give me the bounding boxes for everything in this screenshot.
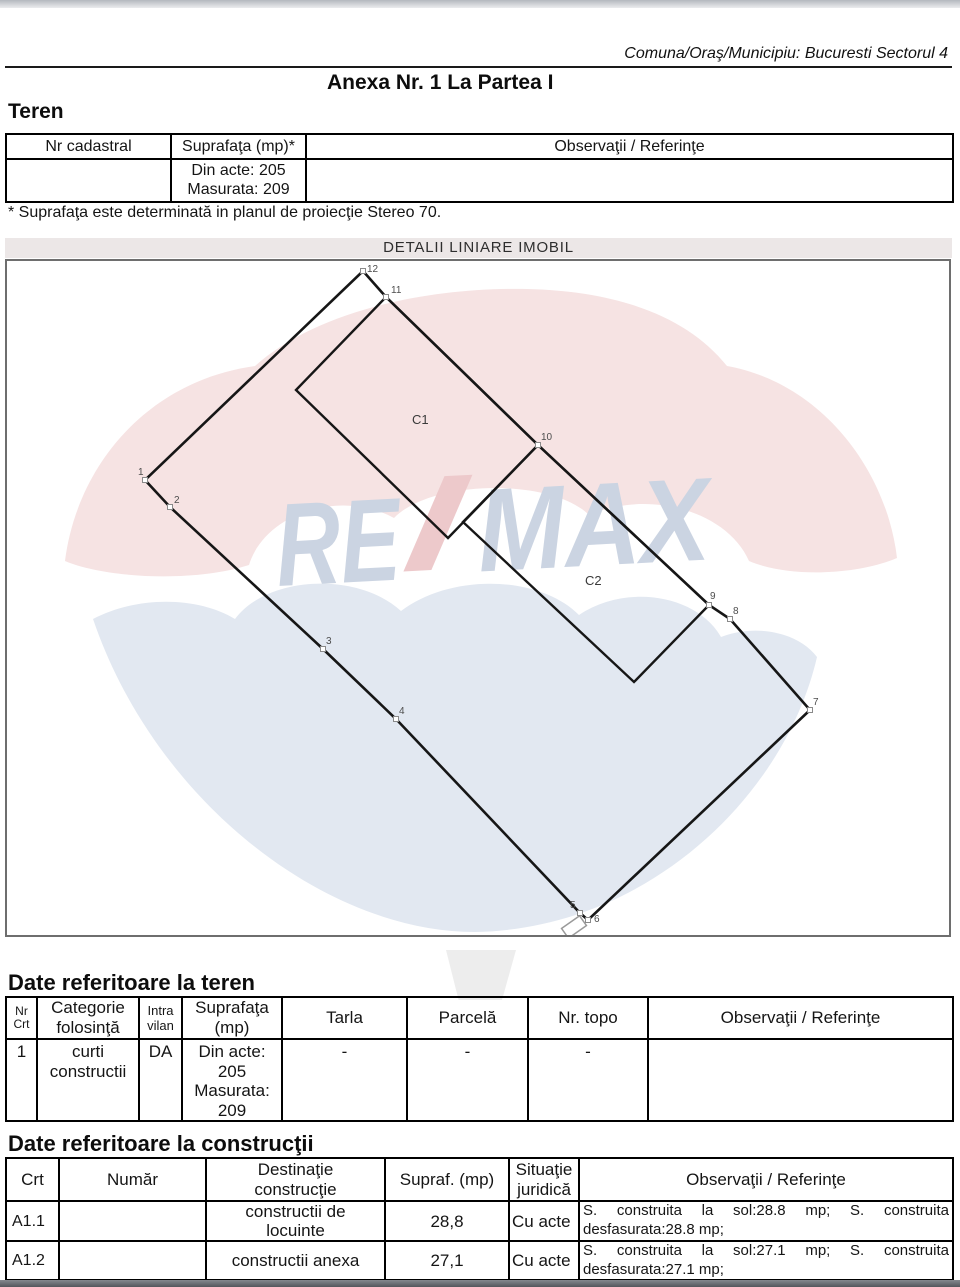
- vertex-marker: [536, 443, 541, 448]
- cell-parcela: -: [407, 1039, 528, 1121]
- balloon-basket: [446, 950, 516, 1000]
- constructii-header-row: Crt Număr Destinaţie construcţie Supraf.…: [6, 1158, 953, 1201]
- cell-suprafata: Din acte: 205 Masurata: 209: [171, 159, 306, 202]
- section-heading-date-teren: Date referitoare la teren: [8, 970, 255, 996]
- column-header-categorie: Categorie folosinţă: [37, 997, 139, 1039]
- vertex-label: 3: [326, 636, 332, 647]
- vertex-marker: [321, 647, 326, 652]
- detalii-banner: DETALII LINIARE IMOBIL: [5, 238, 952, 258]
- building-label-c1: C1: [412, 412, 429, 427]
- table-row: 1 curti constructii DA Din acte: 205 Mas…: [6, 1039, 953, 1121]
- vertex-label: 1: [138, 467, 144, 478]
- cell-situatie: Cu acte: [509, 1201, 579, 1241]
- cadastral-table: Nr cadastral Suprafaţa (mp)* Observaţii …: [5, 133, 954, 203]
- vertex-marker: [361, 269, 366, 274]
- vertex-marker: [168, 505, 173, 510]
- site-plan: RE MAX 1 2 3: [5, 259, 951, 937]
- section-heading-teren: Teren: [8, 100, 64, 124]
- teren-table: Nr Crt Categorie folosinţă Intra vilan S…: [5, 996, 954, 1122]
- cell-numar: [59, 1201, 206, 1241]
- column-header-destinatie: Destinaţie construcţie: [206, 1158, 385, 1201]
- cell-categorie: curti constructii: [37, 1039, 139, 1121]
- cell-suprafata: 28,8: [385, 1201, 509, 1241]
- column-header-suprafata: Suprafaţa (mp)*: [171, 134, 306, 159]
- remax-wordmark: RE MAX: [272, 453, 718, 612]
- building-label-c2: C2: [585, 573, 602, 588]
- column-header-observatii: Observaţii / Referinţe: [648, 997, 953, 1039]
- vertex-label: 6: [594, 914, 600, 925]
- column-header-nr-crt: Nr Crt: [6, 997, 37, 1039]
- suprafata-din-acte: Din acte: 205: [172, 161, 305, 180]
- column-header-numar: Număr: [59, 1158, 206, 1201]
- cell-suprafata: 27,1: [385, 1241, 509, 1280]
- column-header-nr-topo: Nr. topo: [528, 997, 648, 1039]
- cell-crt: A1.2: [6, 1241, 59, 1280]
- vertex-marker: [384, 295, 389, 300]
- cell-observatii: [306, 159, 953, 202]
- cell-nr-topo: -: [528, 1039, 648, 1121]
- column-header-crt: Crt: [6, 1158, 59, 1201]
- constructii-table: Crt Număr Destinaţie construcţie Supraf.…: [5, 1157, 954, 1281]
- vertex-label: 2: [174, 495, 180, 506]
- teren-header-row: Nr Crt Categorie folosinţă Intra vilan S…: [6, 997, 953, 1039]
- vertex-label: 4: [399, 706, 405, 717]
- column-header-tarla: Tarla: [282, 997, 407, 1039]
- vertex-marker: [394, 717, 399, 722]
- column-header-intravilan: Intra vilan: [139, 997, 182, 1039]
- vertex-marker: [143, 478, 148, 483]
- header-location-text: Comuna/Oraş/Municipiu: Bucuresti Sectoru…: [624, 45, 948, 63]
- cell-numar: [59, 1241, 206, 1280]
- vertex-marker: [586, 918, 591, 923]
- column-header-suprafata: Suprafaţa (mp): [182, 997, 282, 1039]
- vertex-marker: [808, 708, 813, 713]
- vertex-label: 5: [570, 900, 576, 911]
- cell-destinatie: constructii anexa: [206, 1241, 385, 1280]
- suprafata-masurata: Masurata: 209: [172, 180, 305, 199]
- page-title: Anexa Nr. 1 La Partea I: [327, 71, 553, 95]
- cell-nr-cadastral: [6, 159, 171, 202]
- column-header-supraf: Supraf. (mp): [385, 1158, 509, 1201]
- vertex-label: 7: [813, 697, 819, 708]
- column-header-observatii: Observaţii / Referinţe: [579, 1158, 953, 1201]
- column-header-parcela: Parcelă: [407, 997, 528, 1039]
- cell-observatii: S. construita la sol:28.8 mp; S. constru…: [579, 1201, 953, 1241]
- vertex-marker: [578, 911, 583, 916]
- table-row: Din acte: 205 Masurata: 209: [6, 159, 953, 202]
- header-divider: [5, 66, 952, 68]
- section-heading-date-constructii: Date referitoare la construcţii: [8, 1131, 314, 1157]
- cell-destinatie: constructii de locuinte: [206, 1201, 385, 1241]
- vertex-label: 9: [710, 591, 716, 602]
- cell-situatie: Cu acte: [509, 1241, 579, 1280]
- cell-crt: A1.1: [6, 1201, 59, 1241]
- cadastral-header-row: Nr cadastral Suprafaţa (mp)* Observaţii …: [6, 134, 953, 159]
- cell-nr-crt: 1: [6, 1039, 37, 1121]
- annex-structure: [562, 916, 587, 935]
- column-header-situatie: Situaţie juridică: [509, 1158, 579, 1201]
- remax-re: RE: [272, 474, 405, 612]
- table-row: A1.1 constructii de locuinte 28,8 Cu act…: [6, 1201, 953, 1241]
- vertex-label: 11: [391, 285, 402, 296]
- vertex-marker: [707, 603, 712, 608]
- column-header-observatii: Observaţii / Referinţe: [306, 134, 953, 159]
- window-top-edge: [0, 0, 960, 8]
- remax-watermark: RE MAX: [65, 289, 897, 932]
- cell-observatii: S. construita la sol:27.1 mp; S. constru…: [579, 1241, 953, 1280]
- table-row: A1.2 constructii anexa 27,1 Cu acte S. c…: [6, 1241, 953, 1280]
- window-bottom-edge: [0, 1280, 960, 1287]
- balloon-bottom: [93, 584, 817, 932]
- footnote: * Suprafaţa este determinată in planul d…: [8, 204, 441, 222]
- vertex-marker: [728, 617, 733, 622]
- vertex-label: 10: [541, 432, 553, 443]
- vertex-label: 8: [733, 606, 739, 617]
- site-plan-svg: RE MAX 1 2 3: [7, 261, 949, 935]
- cell-tarla: -: [282, 1039, 407, 1121]
- cell-suprafata: Din acte: 205 Masurata: 209: [182, 1039, 282, 1121]
- cell-intravilan: DA: [139, 1039, 182, 1121]
- vertex-label: 12: [367, 264, 379, 275]
- cell-observatii: [648, 1039, 953, 1121]
- column-header-nr-cadastral: Nr cadastral: [6, 134, 171, 159]
